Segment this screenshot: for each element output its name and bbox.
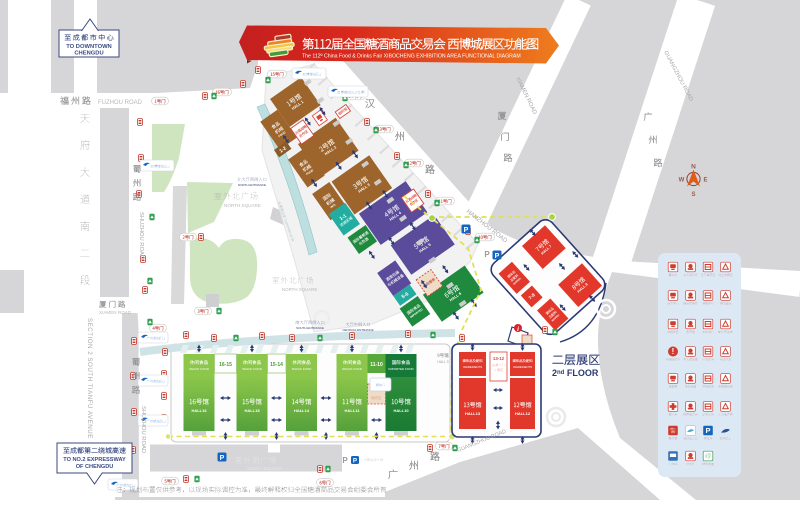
svg-text:SHUZHOU ROAD: SHUZHOU ROAD bbox=[140, 406, 146, 453]
svg-text:NORTH SQUARE: NORTH SQUARE bbox=[282, 287, 317, 292]
svg-text:E: E bbox=[703, 178, 707, 184]
svg-text:P: P bbox=[342, 456, 348, 465]
svg-text:SNACK FOOD: SNACK FOOD bbox=[342, 367, 363, 371]
svg-text:HALL14: HALL14 bbox=[294, 408, 310, 413]
svg-text:S: S bbox=[691, 192, 695, 198]
svg-text:SNACK FOOD: SNACK FOOD bbox=[292, 367, 313, 371]
svg-text:P: P bbox=[353, 458, 357, 465]
svg-text:FUZHOU ROAD: FUZHOU ROAD bbox=[98, 100, 143, 106]
svg-text:16-15: 16-15 bbox=[219, 362, 232, 368]
svg-text:11-10: 11-10 bbox=[370, 362, 383, 368]
svg-text:NORTH ENTRANCE: NORTH ENTRANCE bbox=[238, 183, 266, 187]
svg-text:CENTRAL ENTRANCE: CENTRAL ENTRANCE bbox=[342, 328, 373, 332]
svg-text:TO DOWNTOWN: TO DOWNTOWN bbox=[66, 44, 112, 50]
svg-text:OF CHENGDU: OF CHENGDU bbox=[76, 464, 114, 470]
svg-text:SNACK FOOD: SNACK FOOD bbox=[242, 367, 263, 371]
svg-text:!: ! bbox=[672, 347, 675, 356]
svg-text:CHENGDU: CHENGDU bbox=[74, 51, 103, 57]
svg-text:SECTION 2 SOUTH TIANFU AVENUE: SECTION 2 SOUTH TIANFU AVENUE bbox=[86, 318, 93, 439]
svg-text:P: P bbox=[705, 426, 710, 435]
svg-text:HALL16: HALL16 bbox=[191, 408, 207, 413]
svg-text:P: P bbox=[220, 455, 225, 462]
svg-text:SOUTH SQUARE: SOUTH SQUARE bbox=[247, 466, 282, 471]
svg-text:INGREDIENTS: INGREDIENTS bbox=[463, 365, 482, 369]
svg-text:SHUZHOU ROAD: SHUZHOU ROAD bbox=[138, 212, 144, 259]
svg-text:N: N bbox=[691, 164, 696, 171]
svg-text:P: P bbox=[464, 227, 469, 234]
svg-text:P: P bbox=[484, 250, 490, 259]
svg-text:INGREDIENTS: INGREDIENTS bbox=[513, 365, 532, 369]
svg-text:HALL11: HALL11 bbox=[345, 408, 361, 413]
svg-text:XIAMEN ROAD: XIAMEN ROAD bbox=[99, 310, 132, 315]
svg-text:P: P bbox=[495, 253, 500, 260]
svg-text:SNACK FOOD: SNACK FOOD bbox=[189, 367, 210, 371]
svg-text:NORTH SQUARE: NORTH SQUARE bbox=[224, 203, 261, 208]
svg-text:TO NO.2 EXPRESSWAY: TO NO.2 EXPRESSWAY bbox=[63, 457, 126, 463]
svg-text:i: i bbox=[517, 326, 519, 333]
svg-text:HALL10: HALL10 bbox=[393, 408, 409, 413]
svg-text:HALL13: HALL13 bbox=[465, 411, 481, 416]
svg-text:IMPORTED FOOD: IMPORTED FOOD bbox=[388, 367, 414, 371]
svg-text:HALL12: HALL12 bbox=[515, 411, 531, 416]
svg-text:SOUTH ENTRANCE: SOUTH ENTRANCE bbox=[296, 326, 324, 330]
svg-text:W: W bbox=[679, 178, 685, 184]
svg-text:HALL15: HALL15 bbox=[244, 408, 260, 413]
svg-text:15-14: 15-14 bbox=[270, 362, 283, 368]
svg-text:13-12: 13-12 bbox=[493, 356, 505, 361]
svg-text:The 112º China Food & Drinks F: The 112º China Food & Drinks Fair XIBOCH… bbox=[302, 54, 521, 60]
svg-text:HALL 9: HALL 9 bbox=[437, 360, 448, 364]
